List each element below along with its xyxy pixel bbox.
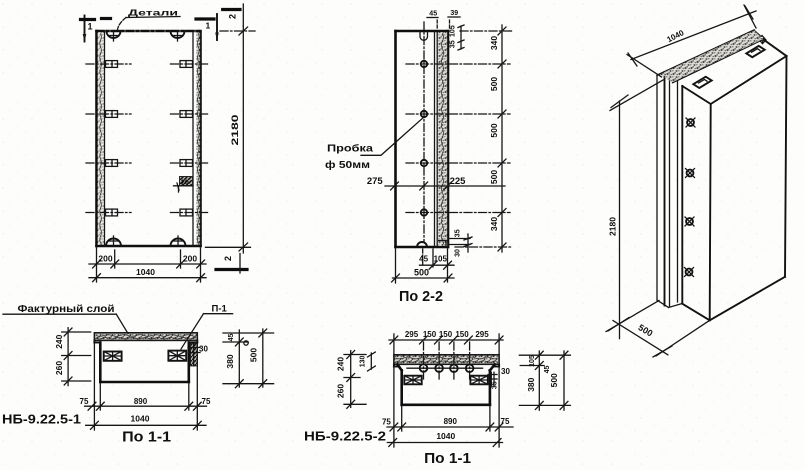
svg-text:500: 500 [489,77,499,91]
svg-text:НБ-9.22.5-2: НБ-9.22.5-2 [304,429,386,444]
svg-text:2180: 2180 [608,217,618,236]
svg-text:200: 200 [98,254,112,264]
svg-text:240: 240 [335,357,345,371]
svg-text:340: 340 [489,36,499,50]
svg-text:30: 30 [501,367,510,376]
svg-text:340: 340 [489,217,499,231]
svg-text:45: 45 [544,366,551,374]
svg-text:75: 75 [80,397,89,406]
svg-text:500: 500 [249,348,259,362]
svg-text:890: 890 [444,417,458,426]
svg-text:75: 75 [202,397,211,406]
svg-text:45: 45 [419,255,428,264]
svg-text:1: 1 [88,22,93,32]
svg-text:130: 130 [359,355,366,367]
svg-text:890: 890 [134,397,148,406]
svg-text:ф 50мм: ф 50мм [325,159,370,171]
svg-text:260: 260 [335,384,345,398]
svg-text:380: 380 [225,354,235,368]
svg-text:150: 150 [455,330,469,339]
svg-text:35: 35 [450,40,457,48]
svg-text:500: 500 [489,170,499,184]
svg-text:1040: 1040 [436,431,455,441]
svg-text:275: 275 [367,176,384,187]
svg-text:380: 380 [526,377,536,391]
svg-text:105: 105 [450,25,457,37]
svg-text:30: 30 [454,249,461,257]
svg-text:35: 35 [492,381,499,389]
svg-text:2180: 2180 [230,115,241,146]
svg-text:Детали: Детали [128,8,178,18]
svg-text:35: 35 [454,229,461,237]
svg-text:По 1-1: По 1-1 [424,450,471,467]
svg-text:150: 150 [423,330,437,339]
svg-text:1040: 1040 [136,267,155,277]
svg-text:200: 200 [183,254,197,264]
svg-text:75: 75 [382,418,391,427]
svg-text:45: 45 [228,334,235,342]
svg-text:Фактурный слой: Фактурный слой [18,303,115,315]
svg-text:225: 225 [450,176,467,187]
svg-text:39: 39 [450,10,458,17]
svg-text:500: 500 [489,123,499,137]
svg-text:П-1: П-1 [212,304,228,315]
svg-text:75: 75 [501,417,510,426]
svg-text:2: 2 [223,256,233,261]
svg-text:240: 240 [54,334,64,348]
svg-text:1: 1 [206,21,211,31]
svg-text:105: 105 [529,355,536,367]
svg-text:30: 30 [199,345,208,354]
svg-text:45: 45 [429,11,437,18]
svg-text:По 2-2: По 2-2 [399,288,443,305]
svg-text:295: 295 [475,330,489,339]
svg-text:500: 500 [414,268,429,278]
svg-text:Пробка: Пробка [327,143,373,155]
svg-text:2: 2 [228,14,238,19]
svg-text:150: 150 [439,330,453,339]
svg-text:1040: 1040 [131,413,150,423]
svg-text:500: 500 [549,373,559,387]
svg-text:По 1-1: По 1-1 [122,429,171,446]
svg-text:295: 295 [405,330,419,339]
svg-text:НБ-9.22.5-1: НБ-9.22.5-1 [2,412,81,427]
svg-text:260: 260 [54,361,64,375]
